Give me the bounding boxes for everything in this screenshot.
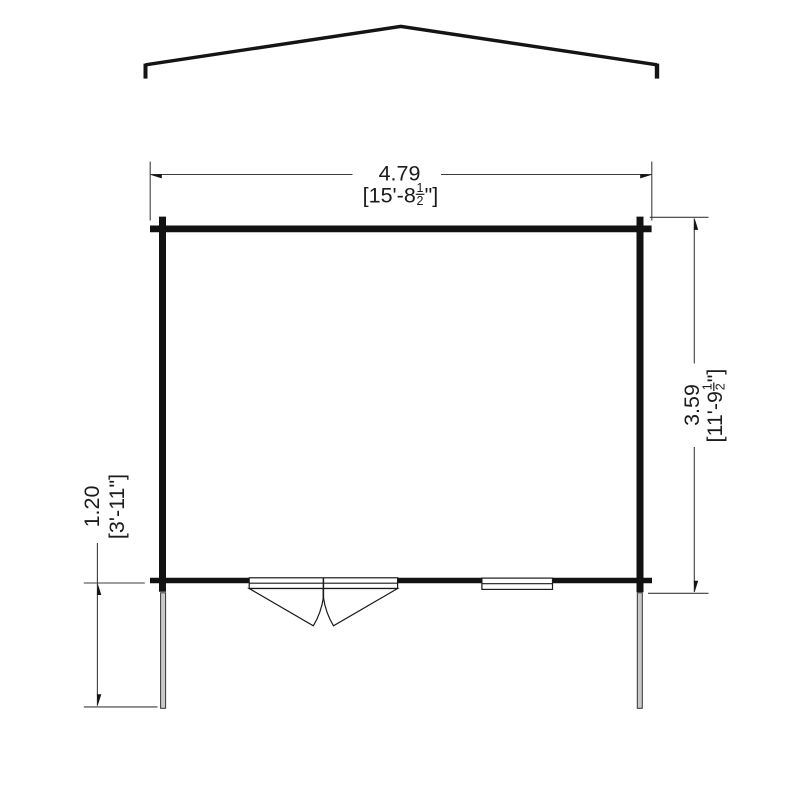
svg-text:[15'-8: [15'-8 [363,184,416,208]
svg-text:4.79: 4.79 [379,162,421,186]
svg-text:2: 2 [714,383,728,390]
svg-text:"]: "] [703,369,727,383]
svg-text:[11'-9: [11'-9 [703,391,727,443]
svg-text:"]: "] [425,184,439,208]
svg-text:1.20: 1.20 [80,486,104,528]
svg-text:[3'-11"]: [3'-11"] [105,474,129,539]
svg-text:2: 2 [417,194,424,208]
